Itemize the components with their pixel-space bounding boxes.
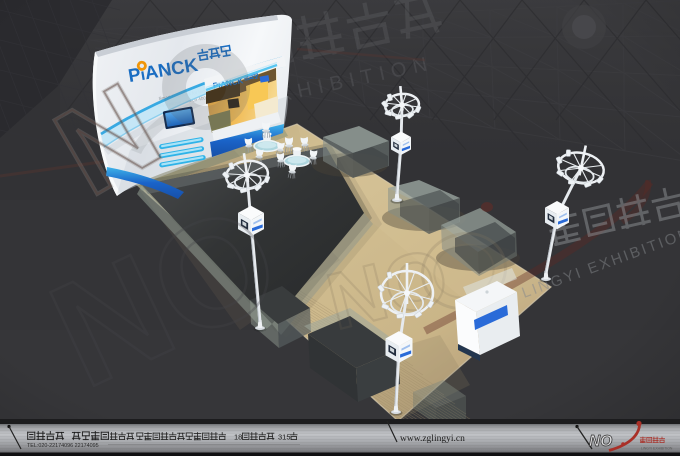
svg-text:www.zglingyi.cn: www.zglingyi.cn (400, 434, 465, 444)
svg-text:315: 315 (278, 433, 291, 442)
svg-text:NO: NO (589, 433, 612, 450)
svg-text:18: 18 (234, 433, 242, 442)
svg-text:LINGYI EXHIBITION: LINGYI EXHIBITION (641, 447, 673, 451)
svg-text:TEL:020-22174096 22174095: TEL:020-22174096 22174095 (27, 443, 99, 449)
